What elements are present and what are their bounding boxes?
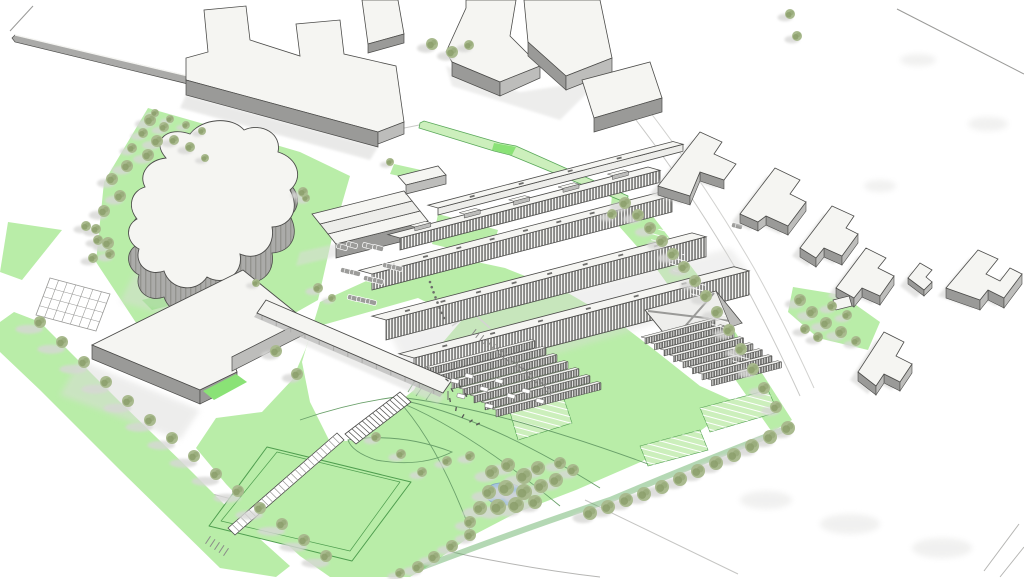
tree-canopy-inner [479,503,485,509]
tree-park [159,122,169,132]
tree-canopy-inner [154,110,158,114]
tree-sBoundary [727,448,741,462]
tree-eStreet [656,235,668,247]
tree-pond [464,516,476,528]
tree-canopy-inner [111,175,116,180]
tree-canopy-inner [740,345,745,350]
tree-canopy-inner [491,467,497,473]
tree-park [102,237,114,249]
tree-pond [485,465,499,479]
tree-canopy-inner [193,452,198,457]
path-dot [429,281,432,284]
tree-canopy-inner [625,495,631,501]
tree-wRoad [298,534,310,546]
tree-park [185,142,195,152]
tree-campus [442,456,452,466]
tree-eStreet [644,222,656,234]
tree-campus [465,451,475,461]
tree-canopy-inner [296,370,301,375]
tree-canopy-inner [611,211,616,216]
tree-canopy-inner [237,487,242,492]
tree-canopy-inner [789,11,794,16]
tree-canopy-inner [317,285,322,290]
tree-canopy-inner [752,365,757,370]
tree-park [127,143,137,153]
tree-canopy-inner [694,277,699,282]
tree-corner [851,336,861,346]
tree-eStreet [735,343,747,355]
tree-canopy-inner [643,489,649,495]
path-dot [440,312,443,315]
seat [456,407,457,411]
tree-canopy-inner [275,347,280,352]
road-shadow [900,54,936,66]
tree-park [151,109,159,117]
tree-wRoad [188,450,200,462]
tree-canopy-inner [607,502,613,508]
tree-canopy-inner [537,463,543,469]
tree-eStreet [667,248,679,260]
tree-park [105,249,115,259]
tree-canopy-inner [468,42,473,47]
tree-canopy-inner [185,122,189,126]
tree-campus [302,194,310,202]
tree-canopy-inner [325,552,330,557]
tree-canopy-inner [811,308,816,313]
tree-canopy-inner [201,128,205,132]
tree-park [151,135,163,147]
tree-wRoad [320,550,332,562]
tree-wRoad [122,395,134,407]
tree-park [98,205,110,217]
tree-campus [270,345,282,357]
north-annex [362,0,404,53]
tree-eStreet [723,324,735,336]
tree-canopy-inner [505,482,512,489]
tree-canopy-inner [399,570,404,575]
tree-park [93,235,103,245]
tree-wRoad [100,376,112,388]
tree-canopy-inner [469,531,474,536]
tree-park [166,115,174,123]
tree-wRoad [166,432,178,444]
tree-canopy-inner [400,451,405,456]
tree-wRoad [34,316,46,328]
tree-canopy-inner [507,460,513,466]
tree-canopy-inner [540,481,546,487]
tree-canopy-inner [763,384,768,389]
tree-canopy-inner [105,378,110,383]
tree-canopy-inner [109,251,114,256]
tree-canopy-inner [523,486,530,493]
tree-canopy-inner [451,48,456,53]
tree-park [138,128,148,138]
tree-canopy-inner [189,144,194,149]
tree-pond [473,501,487,515]
tree-pond [549,473,563,487]
tree-canopy-inner [787,423,793,429]
road-shadow [740,491,792,509]
tree-canopy-inner [451,542,456,547]
tree-canopy-inner [683,263,688,268]
tree-sBoundary [583,506,597,520]
tree-topMid [792,31,802,41]
tree-canopy-inner [281,520,286,525]
tree-park [201,154,209,162]
site-plan-illustration [0,0,1024,579]
tree-campus [252,279,260,287]
tree-canopy-inner [733,450,739,456]
tree-eStreet [632,209,644,221]
tree-topMid [464,40,474,50]
tree-canopy-inner [119,192,124,197]
path-dot [430,286,433,289]
tree-wRoad [210,468,222,480]
tree-park [88,253,98,263]
tree-canopy-inner [488,487,494,493]
tree-pond [516,468,532,484]
tree-canopy-inner [163,124,168,129]
tree-campus [396,449,406,459]
tree-sBoundary [637,487,651,501]
tree-canopy-inner [796,33,801,38]
tree-sBoundary [446,540,458,552]
tree-sBoundary [428,551,440,563]
tree-canopy-inner [855,338,860,343]
tree-canopy-inner [215,470,220,475]
tree-canopy-inner [555,475,561,481]
tree-park [182,121,190,129]
tree-pond [554,457,566,469]
tree-canopy-inner [728,326,733,331]
tree-wRoad [56,336,68,348]
tree-park [198,127,206,135]
tree-canopy-inner [469,453,474,458]
tree-canopy-inner [431,40,436,45]
tree-campus [291,368,303,380]
tree-canopy-inner [637,211,642,216]
tree-canopy-inner [305,195,309,199]
tree-topMid [446,46,458,58]
tree-sBoundary [745,439,759,453]
tree-pond [490,499,506,515]
tree-canopy-inner [679,474,685,480]
tree-park [91,224,101,234]
tree-park [142,149,154,161]
tree-pond [501,458,515,472]
tree-canopy-inner [825,319,830,324]
tree-canopy-inner [83,358,88,363]
tree-topMid [426,38,438,50]
tree-canopy-inner [156,137,161,142]
tree-canopy-inner [303,536,308,541]
tree-canopy-inner [831,303,836,308]
tree-eStreet [700,290,712,302]
tree-sBoundary [464,529,476,541]
tree-pond [508,497,524,513]
tree-canopy-inner [534,497,540,503]
tree-canopy-inner [515,499,522,506]
tree-canopy-inner [389,159,393,163]
tree-park [328,294,336,302]
tree-park [81,221,91,231]
tree-sBoundary [395,568,405,578]
tree-canopy-inner [661,237,666,242]
tree-sBoundary [619,493,633,507]
tree-corner [813,332,823,342]
tree-park [121,160,133,172]
tree-canopy-inner [375,434,380,439]
tree-park [313,283,323,293]
tree-canopy-inner [255,280,259,284]
tree-wRoad [78,356,90,368]
tree-eStreet [770,401,782,413]
tree-canopy-inner [559,459,564,464]
path-dot [434,296,437,299]
tree-canopy-inner [173,137,178,142]
tree-canopy-inner [716,308,721,313]
tree-canopy-inner [103,207,108,212]
tree-canopy-inner [107,239,112,244]
tree-campus [417,467,427,477]
tree-canopy-inner [672,250,677,255]
tree-canopy-inner [131,145,136,150]
tree-canopy-inner [127,397,132,402]
tree-sBoundary [655,480,669,494]
path-dot [443,317,446,320]
path-dot [432,291,435,294]
tree-canopy-inner [523,470,530,477]
tree-canopy-inner [846,312,851,317]
tree-eStreet [747,363,759,375]
tree-campus [371,432,381,442]
road-shadow [968,117,1008,131]
tree-canopy-inner [97,237,102,242]
tree-sBoundary [412,561,424,573]
tree-sBoundary [673,472,687,486]
tree-canopy-inner [840,328,845,333]
tree-canopy-inner [769,432,775,438]
tree-sBoundary [709,456,723,470]
tree-pond [531,461,545,475]
path-dot [438,306,441,309]
tree-canopy-inner [661,482,667,488]
tree-canopy-inner [259,504,264,509]
tree-eStreet [689,275,701,287]
tree-eStreet [758,382,770,394]
tree-corner [827,301,837,311]
tree-canopy-inner [171,434,176,439]
tree-corner [835,326,847,338]
tree-canopy-inner [715,458,721,464]
tree-sBoundary [601,500,615,514]
tree-canopy-inner [775,403,780,408]
tree-pond [534,479,548,493]
tree-canopy-inner [142,130,147,135]
tree-wRoad [232,485,244,497]
tree-canopy-inner [624,199,629,204]
tree-campus [386,158,394,166]
tree-canopy-inner [649,224,654,229]
tree-canopy-inner [446,458,451,463]
road-shadow [912,538,972,558]
tree-canopy-inner [433,553,438,558]
tree-topMid [785,9,795,19]
tree-canopy-inner [147,151,152,156]
tree-sBoundary [781,421,795,435]
tree-canopy-inner [572,466,577,471]
tree-canopy-inner [61,338,66,343]
tree-sBoundary [763,430,777,444]
tree-canopy-inner [804,326,809,331]
tree-canopy-inner [85,223,90,228]
tree-canopy-inner [417,563,422,568]
tree-canopy-inner [705,292,710,297]
tree-park [106,173,118,185]
tree-canopy-inner [149,416,154,421]
tree-canopy-inner [331,295,335,299]
tree-wRoad [254,502,266,514]
road-shadow [864,180,896,192]
tree-pond [498,480,514,496]
tree-canopy-inner [126,162,131,167]
tree-canopy-inner [697,466,703,472]
tree-canopy-inner [799,296,804,301]
tree-eStreet [678,261,690,273]
tree-park [169,135,179,145]
road-shadow [820,514,880,534]
tree-corner [806,306,818,318]
tree-wRoad [276,518,288,530]
tree-park [114,190,126,202]
tree-canopy-inner [39,318,44,323]
tree-canopy-inner [751,441,757,447]
tree-pond [528,495,542,509]
tree-corner [842,310,852,320]
tree-corner [800,324,810,334]
tree-canopy-inner [92,255,97,260]
tree-eStreet [607,209,617,219]
tree-eStreet [619,197,631,209]
tree-canopy-inner [204,155,208,159]
tree-canopy-inner [469,518,474,523]
tree-corner [820,317,832,329]
tree-pond [482,485,496,499]
seat [450,398,451,402]
path-dot [436,301,439,304]
tree-canopy-inner [95,226,100,231]
site-plan-stage [0,0,1024,579]
tree-eStreet [711,306,723,318]
tree-canopy-inner [497,501,504,508]
tree-canopy-inner [421,469,426,474]
tree-corner [794,294,806,306]
tree-pond [567,464,579,476]
tree-canopy-inner [302,189,307,194]
tree-canopy-inner [589,508,595,514]
tree-canopy-inner [169,116,173,120]
tree-canopy-inner [817,334,822,339]
tree-sBoundary [691,464,705,478]
tree-wRoad [144,414,156,426]
